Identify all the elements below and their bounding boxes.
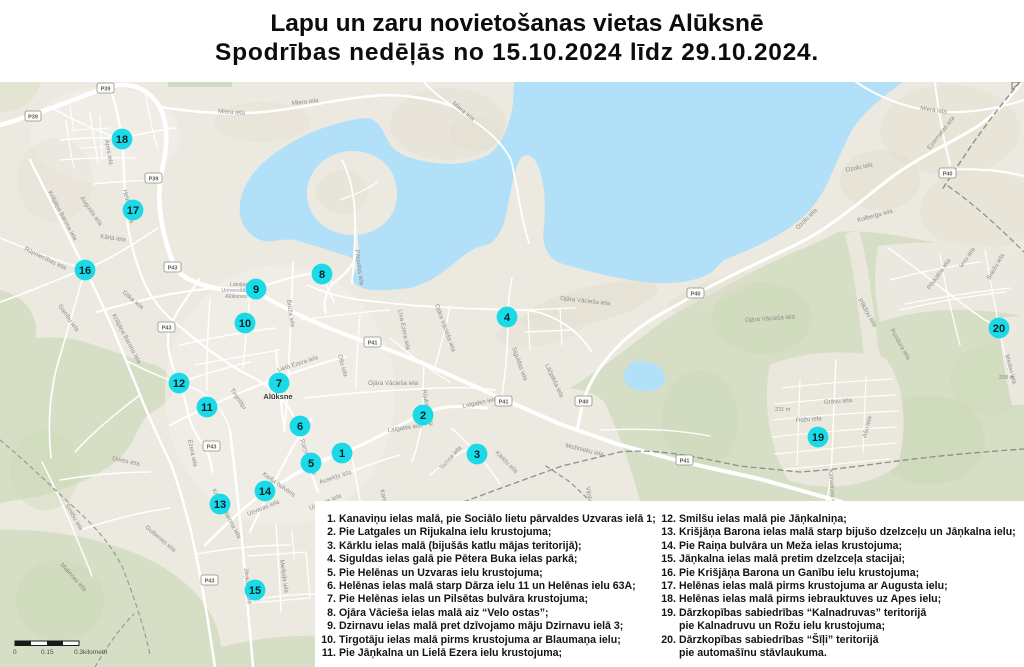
svg-text:0.3kilometri: 0.3kilometri xyxy=(74,649,107,656)
svg-text:Ojāra Vācieša iela: Ojāra Vācieša iela xyxy=(368,380,419,387)
svg-text:8: 8 xyxy=(319,269,325,281)
svg-text:P43: P43 xyxy=(207,445,217,451)
svg-text:231 m: 231 m xyxy=(775,407,791,413)
svg-text:6: 6 xyxy=(297,421,303,433)
svg-text:15: 15 xyxy=(249,585,261,597)
svg-text:11: 11 xyxy=(201,402,213,414)
svg-text:Alūksnes: Alūksnes xyxy=(225,294,247,300)
svg-text:P43: P43 xyxy=(162,326,172,332)
svg-text:0: 0 xyxy=(13,649,17,656)
svg-text:P41: P41 xyxy=(680,459,690,465)
svg-text:P39: P39 xyxy=(28,115,38,121)
svg-text:5: 5 xyxy=(308,458,314,470)
svg-text:13: 13 xyxy=(214,499,226,511)
svg-text:P40: P40 xyxy=(943,172,953,178)
svg-text:17: 17 xyxy=(127,205,139,217)
svg-text:10: 10 xyxy=(239,318,251,330)
svg-text:2: 2 xyxy=(420,410,426,422)
svg-text:16: 16 xyxy=(79,265,91,277)
svg-text:0.15: 0.15 xyxy=(41,649,54,656)
svg-text:208 m: 208 m xyxy=(999,375,1015,381)
svg-text:20: 20 xyxy=(993,323,1005,335)
svg-text:P39: P39 xyxy=(149,177,159,183)
svg-text:9: 9 xyxy=(253,284,259,296)
svg-text:14: 14 xyxy=(259,486,272,498)
svg-text:P41: P41 xyxy=(499,400,509,406)
svg-text:12: 12 xyxy=(173,378,185,390)
svg-text:19: 19 xyxy=(812,432,824,444)
svg-text:P39: P39 xyxy=(101,87,111,93)
svg-text:P40: P40 xyxy=(691,292,701,298)
svg-text:4: 4 xyxy=(504,312,511,324)
svg-text:P43: P43 xyxy=(205,579,215,585)
svg-text:P41: P41 xyxy=(368,341,378,347)
svg-text:P40: P40 xyxy=(579,400,589,406)
svg-text:3: 3 xyxy=(474,449,480,461)
svg-text:1: 1 xyxy=(339,448,345,460)
svg-text:7: 7 xyxy=(276,378,282,390)
svg-text:P43: P43 xyxy=(168,266,178,272)
svg-text:18: 18 xyxy=(116,134,128,146)
